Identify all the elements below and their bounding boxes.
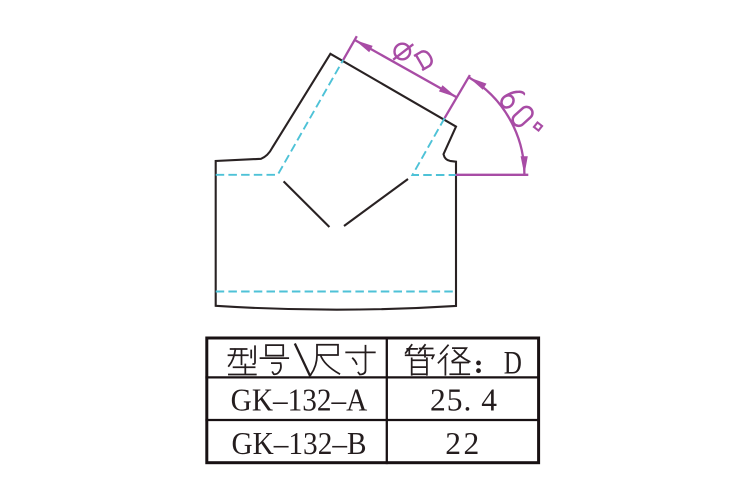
svg-text:22: 22: [445, 426, 482, 461]
svg-text:GK–132–A: GK–132–A: [231, 383, 368, 418]
svg-text:D: D: [504, 345, 522, 381]
svg-text:GK–132–B: GK–132–B: [231, 426, 366, 461]
svg-text:25. 4: 25. 4: [430, 383, 498, 418]
